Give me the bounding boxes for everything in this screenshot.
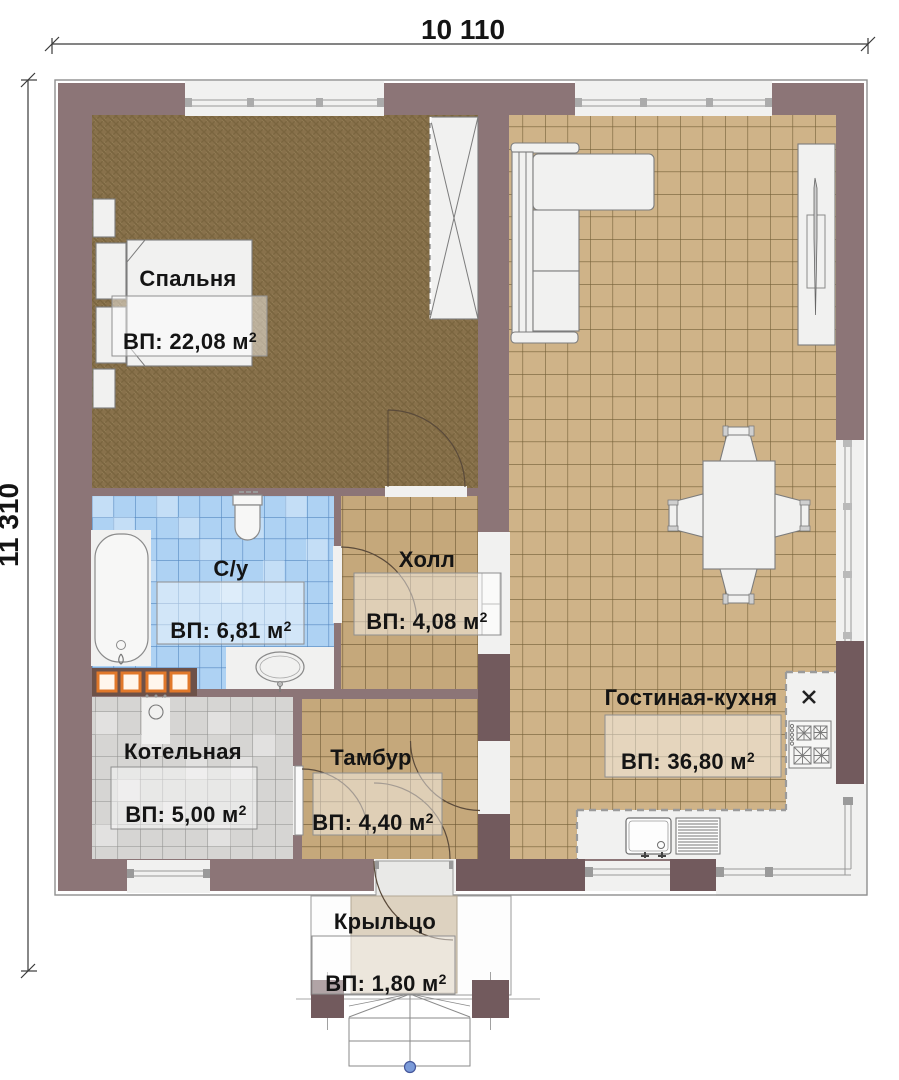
svg-text:С/у: С/у — [213, 556, 249, 581]
svg-text:ВП: 5,00 м2: ВП: 5,00 м2 — [125, 802, 246, 827]
svg-text:11 310: 11 310 — [0, 483, 24, 567]
svg-text:ВП: 4,08 м2: ВП: 4,08 м2 — [366, 609, 487, 634]
svg-text:Крыльцо: Крыльцо — [334, 909, 436, 934]
svg-text:ВП: 6,81 м2: ВП: 6,81 м2 — [170, 618, 291, 643]
svg-text:Тамбур: Тамбур — [330, 745, 412, 770]
svg-text:Котельная: Котельная — [124, 739, 242, 764]
svg-text:Гостиная-кухня: Гостиная-кухня — [605, 685, 778, 710]
svg-text:10 110: 10 110 — [421, 14, 505, 45]
svg-text:ВП: 36,80 м2: ВП: 36,80 м2 — [621, 749, 755, 774]
svg-text:ВП: 1,80 м2: ВП: 1,80 м2 — [325, 971, 446, 996]
svg-text:ВП: 22,08 м2: ВП: 22,08 м2 — [123, 329, 257, 354]
svg-text:ВП: 4,40 м2: ВП: 4,40 м2 — [312, 810, 433, 835]
svg-text:Холл: Холл — [399, 547, 455, 572]
svg-text:Спальня: Спальня — [139, 266, 236, 291]
